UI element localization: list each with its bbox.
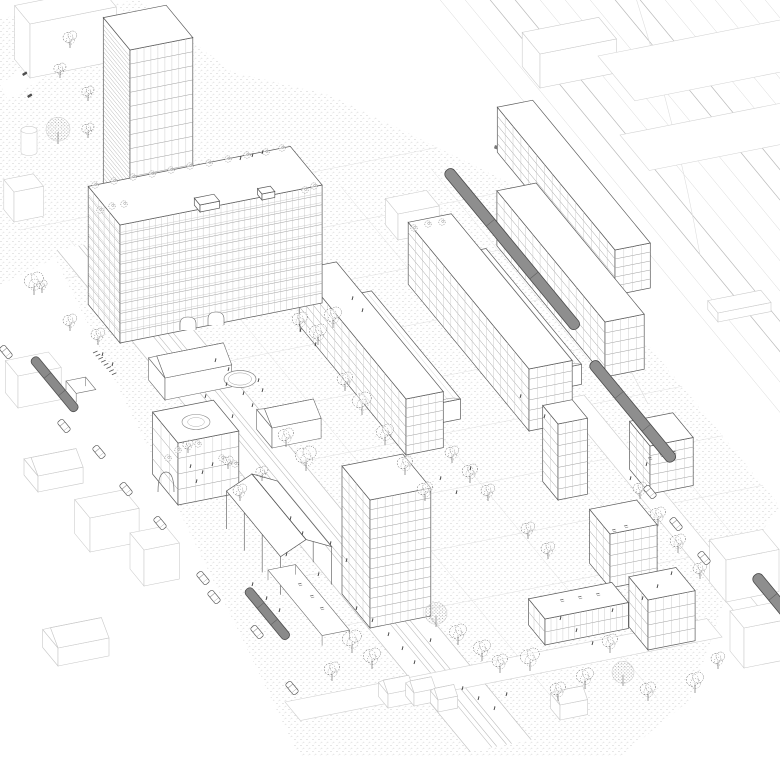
context-house-sw xyxy=(43,618,109,666)
block-g2-building xyxy=(543,400,588,500)
plaza-tower-building xyxy=(342,454,431,628)
car xyxy=(92,444,106,459)
car xyxy=(0,344,13,359)
car xyxy=(196,570,210,585)
context-house-s3 xyxy=(430,685,457,713)
tree xyxy=(711,652,725,669)
context-building-s2 xyxy=(130,526,179,586)
context-house-w xyxy=(24,449,83,492)
tree xyxy=(63,314,77,331)
context-building-s1 xyxy=(75,490,139,552)
context-building-w1 xyxy=(4,174,44,222)
car xyxy=(57,418,71,433)
roof-structure-2 xyxy=(258,186,275,200)
context-building-e2 xyxy=(730,603,780,669)
courtyard-building xyxy=(153,400,239,505)
facade-arch xyxy=(180,317,196,330)
cube-building-se xyxy=(629,568,695,651)
facade-arch xyxy=(208,312,224,325)
axonometric-site-drawing xyxy=(0,0,780,757)
drawing-canvas xyxy=(0,0,780,757)
context-silo xyxy=(21,126,37,155)
